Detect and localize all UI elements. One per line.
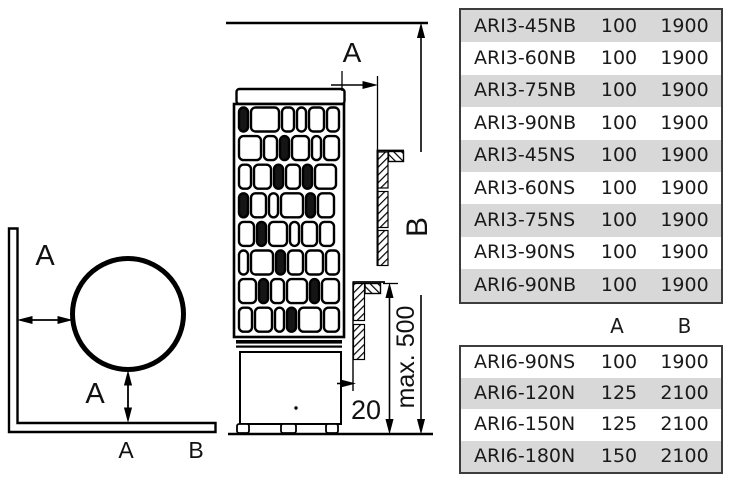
table-row: ARI3-45NB 100 1900 xyxy=(461,10,721,42)
dimension-b-cell: 1900 xyxy=(648,179,721,198)
dimension-b-cell: 1900 xyxy=(648,114,721,133)
table-row: ARI3-75NS 100 1900 xyxy=(461,204,721,236)
table-row: ARI3-90NB 100 1900 xyxy=(461,107,721,139)
table-row: ARI6-90NB 100 1900 xyxy=(461,269,721,301)
table-row: ARI6-180N 150 2100 xyxy=(461,441,721,472)
dimension-a-cell: 100 xyxy=(590,353,648,372)
heater-top-rim xyxy=(237,89,345,104)
dimension-a-cell: 100 xyxy=(590,146,648,165)
model-cell: ARI6-120N xyxy=(461,384,590,403)
label-a-floor: A xyxy=(85,378,105,410)
table-row: ARI6-150N 125 2100 xyxy=(461,409,721,440)
dimension-a-cell: 100 xyxy=(590,211,648,230)
model-cell: ARI3-60NB xyxy=(461,49,590,68)
dimension-b-cell: 1900 xyxy=(648,353,721,372)
heater-foot xyxy=(281,424,296,433)
axis-label-b: B xyxy=(188,437,203,463)
table-row: ARI3-60NB 100 1900 xyxy=(461,42,721,74)
top-view-diagram: A A A B xyxy=(9,229,216,464)
model-cell: ARI3-75NS xyxy=(461,211,590,230)
dimension-a-cell: 100 xyxy=(590,276,648,295)
model-cell: ARI3-45NS xyxy=(461,146,590,165)
dimension-a-cell: 100 xyxy=(590,17,648,36)
base-screw xyxy=(294,406,297,409)
model-cell: ARI6-150N xyxy=(461,415,590,434)
guard-cap xyxy=(365,284,381,294)
dimension-a-cell: 100 xyxy=(590,179,648,198)
column-header-b: B xyxy=(646,314,723,338)
dimension-b-cell: 2100 xyxy=(648,415,721,434)
installation-guide-page: A A A B xyxy=(0,0,732,487)
label-gap-20: 20 xyxy=(351,395,381,425)
model-cell: ARI3-60NS xyxy=(461,179,590,198)
heater-base xyxy=(240,352,341,424)
dimension-b-cell: 1900 xyxy=(648,146,721,165)
dimension-b-cell: 1900 xyxy=(648,211,721,230)
table-row: ARI3-90NS 100 1900 xyxy=(461,237,721,269)
heater-trim-band2 xyxy=(236,346,342,348)
axis-label-a: A xyxy=(118,437,134,463)
wall-section xyxy=(377,76,405,266)
dimension-b-cell: 1900 xyxy=(648,49,721,68)
dimension-b-cell: 1900 xyxy=(648,243,721,262)
column-header-a: A xyxy=(588,314,646,338)
table-row: ARI6-90NS 100 1900 xyxy=(461,347,721,378)
dimension-b-cell: 1900 xyxy=(648,17,721,36)
model-cell: ARI3-75NB xyxy=(461,81,590,100)
heater-dimensions-table-upper: ARI3-45NB 100 1900 ARI3-60NB 100 1900 AR… xyxy=(459,8,723,304)
installation-diagram: A A A B xyxy=(0,0,456,487)
dimension-arrow-a-floorwall xyxy=(125,372,132,421)
model-cell: ARI3-45NB xyxy=(461,17,590,36)
model-cell: ARI6-90NS xyxy=(461,353,590,372)
heater-dimensions-table-lower: ARI6-90NS 100 1900 ARI6-120N 125 2100 AR… xyxy=(459,345,723,474)
dimension-b-cell: 2100 xyxy=(648,384,721,403)
label-max-height: max. 500 xyxy=(392,306,420,409)
dimension-a-cell: 100 xyxy=(590,243,648,262)
label-b: B xyxy=(401,217,434,237)
dimension-a-cell: 125 xyxy=(590,384,648,403)
model-cell: ARI6-180N xyxy=(461,447,590,466)
dimension-a-cell: 100 xyxy=(590,49,648,68)
dimension-a-cell: 125 xyxy=(590,415,648,434)
heater-foot xyxy=(237,424,249,433)
dimension-b-cell: 1900 xyxy=(648,276,721,295)
heater-trim-band xyxy=(236,340,342,344)
heater-front-view xyxy=(234,89,345,433)
table-row: ARI3-45NS 100 1900 xyxy=(461,140,721,172)
label-a-wall: A xyxy=(35,240,55,272)
dimension-a-cell: 100 xyxy=(590,81,648,100)
front-view-diagram: A xyxy=(226,23,434,434)
table-row: ARI6-120N 125 2100 xyxy=(461,378,721,409)
model-cell: ARI3-90NB xyxy=(461,114,590,133)
table-row: ARI3-75NB 100 1900 xyxy=(461,75,721,107)
dimension-a-cell: 150 xyxy=(590,447,648,466)
table-row: ARI3-60NS 100 1900 xyxy=(461,172,721,204)
guard-section xyxy=(353,282,386,391)
dimension-arrow-a-wall xyxy=(19,317,71,324)
dimension-a-cell: 100 xyxy=(590,114,648,133)
column-header-row: A B xyxy=(459,311,723,341)
dimension-b-cell: 2100 xyxy=(648,447,721,466)
heater-top-view xyxy=(73,259,184,370)
dimension-b-cell: 1900 xyxy=(648,81,721,100)
wall-cap xyxy=(389,152,404,162)
label-a: A xyxy=(343,37,362,68)
model-cell: ARI6-90NB xyxy=(461,276,590,295)
heater-foot xyxy=(326,424,338,433)
model-cell: ARI3-90NS xyxy=(461,243,590,262)
